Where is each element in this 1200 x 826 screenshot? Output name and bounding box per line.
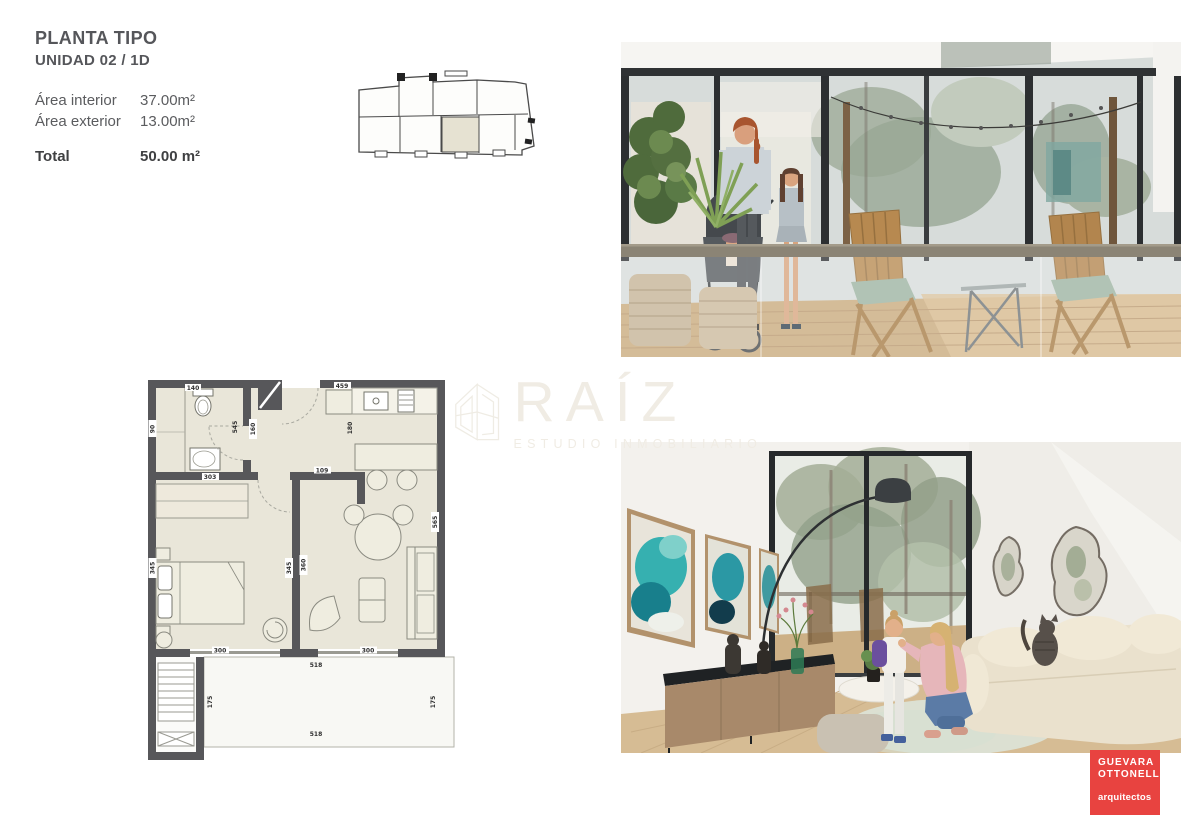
area-summary: Área interior 37.00m² Área exterior 13.0… (35, 90, 200, 167)
raiz-logo-icon (452, 360, 504, 464)
chair (344, 505, 364, 525)
dim-label: 180 (347, 422, 354, 435)
dim-label: 175 (207, 696, 214, 709)
dim-label: 140 (187, 385, 200, 392)
stool (397, 470, 417, 490)
dim-label: 459 (336, 383, 349, 390)
area-exterior-row: Área exterior 13.00m² (35, 111, 200, 132)
building-key-plan (345, 60, 550, 185)
dim-label: 160 (250, 423, 257, 436)
architect-logo: GUEVARA OTTONELLO arquitectos (1090, 750, 1160, 815)
chair (393, 505, 413, 525)
page-subtitle: UNIDAD 02 / 1D (35, 52, 157, 69)
terrace-door-bedroom (190, 651, 280, 654)
terrace-door-living (318, 651, 398, 654)
title-block: PLANTA TIPO UNIDAD 02 / 1D (35, 28, 157, 69)
sofa (407, 547, 437, 639)
architect-name-line2: OTTONELLO (1098, 769, 1160, 781)
dim-label: 345 (150, 562, 157, 575)
skylight (941, 42, 1051, 68)
dim-label: 565 (432, 516, 439, 529)
pouf (156, 632, 172, 648)
unit-floor-plan: 459 140 545 160 180 109 303 565 345 345 … (140, 372, 460, 764)
glass-balustrade (621, 254, 1181, 357)
area-interior-label: Área interior (35, 90, 140, 111)
area-total-label: Total (35, 146, 140, 167)
terrace (204, 657, 454, 747)
stove (398, 390, 414, 412)
area-exterior-value: 13.00m² (140, 111, 195, 132)
dim-label: 360 (301, 559, 308, 572)
sofa (957, 614, 1181, 744)
nightstand (156, 548, 170, 560)
key-plan-drawing (345, 60, 550, 185)
dim-label: 518 (310, 662, 323, 669)
dim-label: 300 (214, 648, 227, 655)
architect-name-line1: GUEVARA (1098, 757, 1160, 769)
highlighted-unit (442, 117, 479, 152)
dim-label: 345 (286, 562, 293, 575)
dim-label: 545 (232, 421, 239, 434)
kitchen-sink (364, 392, 388, 410)
area-interior-row: Área interior 37.00m² (35, 90, 200, 111)
area-exterior-label: Área exterior (35, 111, 140, 132)
glass-vase (791, 648, 804, 674)
floor-plan-drawing: 459 140 545 160 180 109 303 565 345 345 … (140, 372, 460, 764)
watermark-tagline: ESTUDIO INMOBILIARIO (514, 437, 762, 451)
area-total-row: Total 50.00 m² (35, 146, 200, 167)
dim-label: 300 (362, 648, 375, 655)
kitchen-island (355, 444, 437, 470)
terrace-illustration (621, 42, 1181, 357)
dim-label: 175 (430, 696, 437, 709)
dim-label: 518 (310, 731, 323, 738)
living-room-render-photo (621, 442, 1181, 753)
dim-label: 109 (316, 468, 329, 475)
watermark-brand: RAÍZ (514, 374, 762, 431)
dim-label: 303 (204, 474, 217, 481)
watermark: RAÍZ ESTUDIO INMOBILIARIO (452, 360, 762, 470)
page-title: PLANTA TIPO (35, 28, 157, 49)
pouf (817, 714, 889, 753)
living-room-illustration (621, 442, 1181, 753)
architect-subtitle: arquitectos (1098, 792, 1160, 803)
wood-post (843, 102, 850, 252)
area-total-value: 50.00 m² (140, 146, 200, 167)
area-interior-value: 37.00m² (140, 90, 195, 111)
wood-post (1109, 97, 1117, 257)
stool (367, 470, 387, 490)
dim-label: 90 (150, 425, 157, 433)
terrace-render-photo (621, 42, 1181, 357)
fridge (326, 390, 352, 414)
